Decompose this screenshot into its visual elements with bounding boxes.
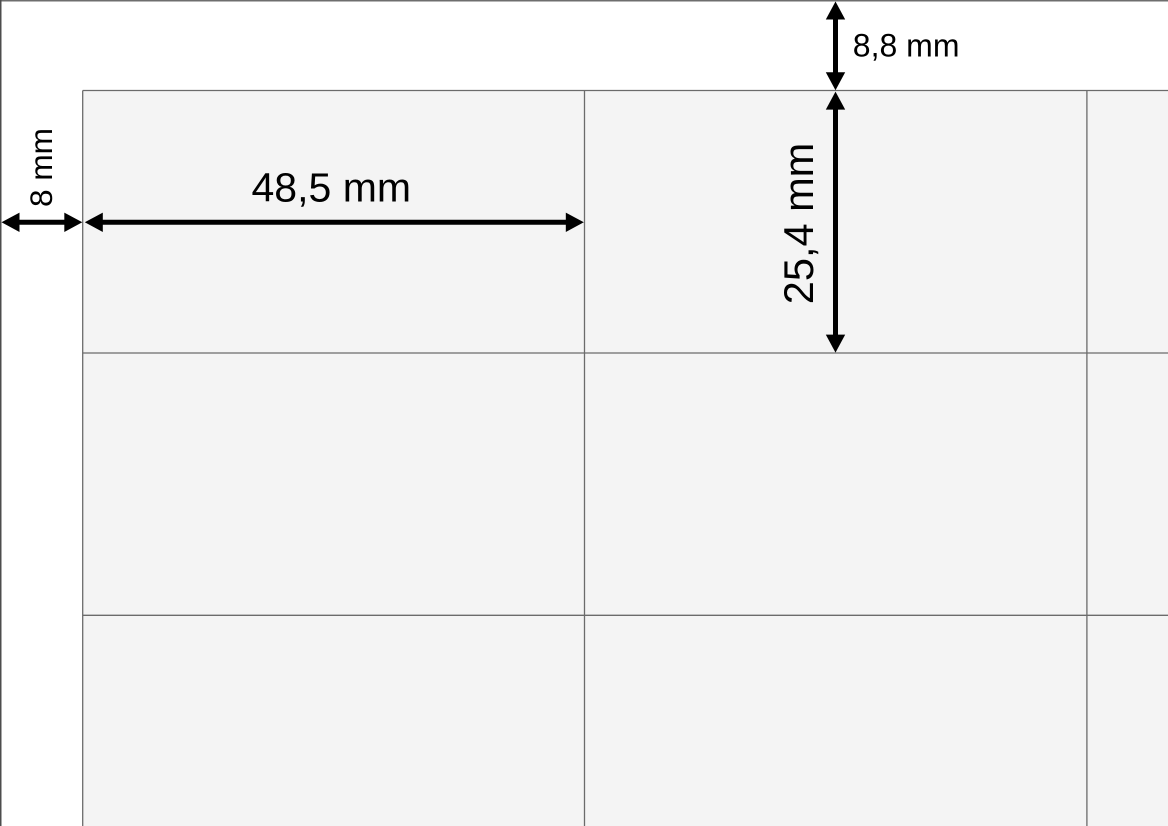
svg-text:8,8 mm: 8,8 mm: [853, 28, 960, 64]
svg-text:48,5 mm: 48,5 mm: [252, 164, 412, 210]
svg-text:8 mm: 8 mm: [23, 128, 59, 207]
svg-text:25,4 mm: 25,4 mm: [775, 143, 822, 304]
